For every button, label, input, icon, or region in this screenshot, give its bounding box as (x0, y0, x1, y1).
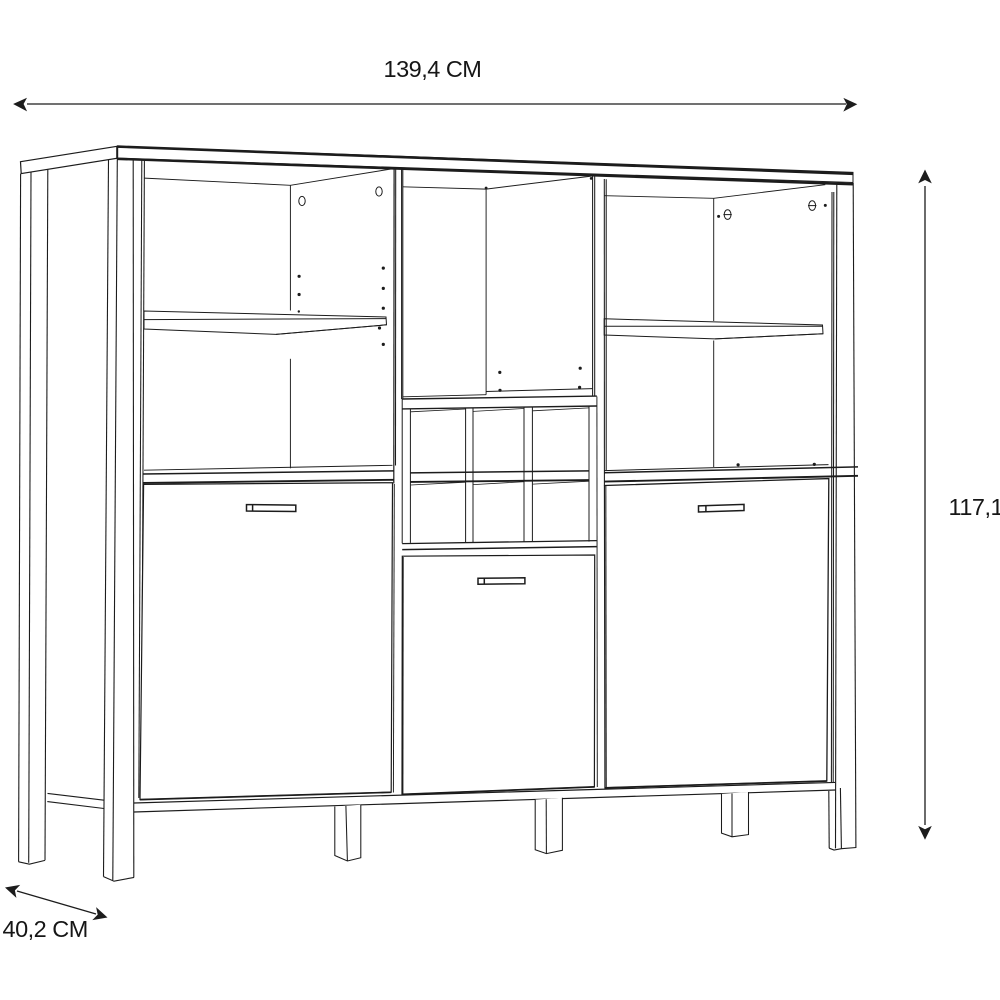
svg-text:117,1 C: 117,1 C (949, 494, 1000, 520)
svg-text:40,2 CM: 40,2 CM (3, 916, 88, 942)
svg-text:139,4 CM: 139,4 CM (384, 56, 482, 82)
